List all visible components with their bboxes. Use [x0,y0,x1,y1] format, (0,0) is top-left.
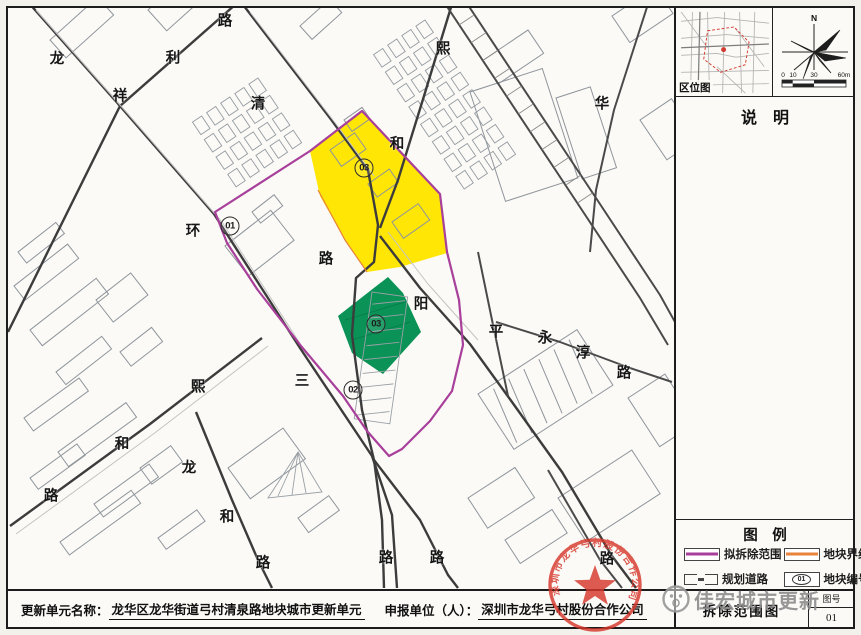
zone-plot-03-green [338,277,421,374]
compass-and-scale: N 0 10 30 60m [774,10,853,94]
building-outlines [14,8,675,563]
legend-title: 图 例 [675,524,855,545]
watermark: 佳宏城市更新 [661,583,820,615]
scanned-planning-sheet: { "map": { "road_labels": [ {"t":"龙","x"… [0,0,861,635]
legend-item-label: 地块界线 [824,546,861,562]
divider-inset-compass [772,8,773,96]
watermark-text: 佳宏城市更新 [694,585,820,614]
map-drawing [8,8,675,589]
divider-legend-top [675,519,855,520]
svg-text:60m: 60m [838,72,851,79]
panel-left-divider [674,6,676,629]
unit-name-value: 龙华区龙华街道弓村清泉路地块城市更新单元 [109,599,365,620]
notes-title: 说 明 [675,104,855,128]
inset-unit-boundary [704,27,749,72]
red-company-seal: 深圳市龙华弓村股份合作公司 [545,531,645,634]
svg-text:10: 10 [789,72,797,79]
scale-bar [782,80,846,87]
svg-text:0: 0 [781,72,785,79]
legend-line-swatch [784,548,820,561]
legend-item-label: 地块编号 [824,571,861,587]
divider-inset-bottom [675,96,855,97]
legend-item: 拟拆除范围 [684,546,782,562]
legend-item-label: 拟拆除范围 [724,546,782,562]
demolition-scope-map [8,8,675,589]
scale-bar-labels: 0 10 30 60m [781,72,850,79]
unit-name-label: 更新单元名称： [21,600,109,619]
seal-star-icon [574,565,616,605]
north-label: N [811,13,817,23]
inset-map-label: 区位图 [677,80,713,95]
applicant-label: 申报单位（人）： [385,600,479,619]
road-network [8,8,675,588]
compass-rose-icon [782,24,848,70]
legend-line-swatch [684,548,720,561]
legend: 拟拆除范围地块界线规划道路01地块编号 [684,546,850,587]
inset-site-dot [721,47,726,52]
legend-item: 地块界线 [784,546,861,562]
svg-text:30: 30 [810,72,818,79]
watermark-logo-icon [661,583,691,615]
